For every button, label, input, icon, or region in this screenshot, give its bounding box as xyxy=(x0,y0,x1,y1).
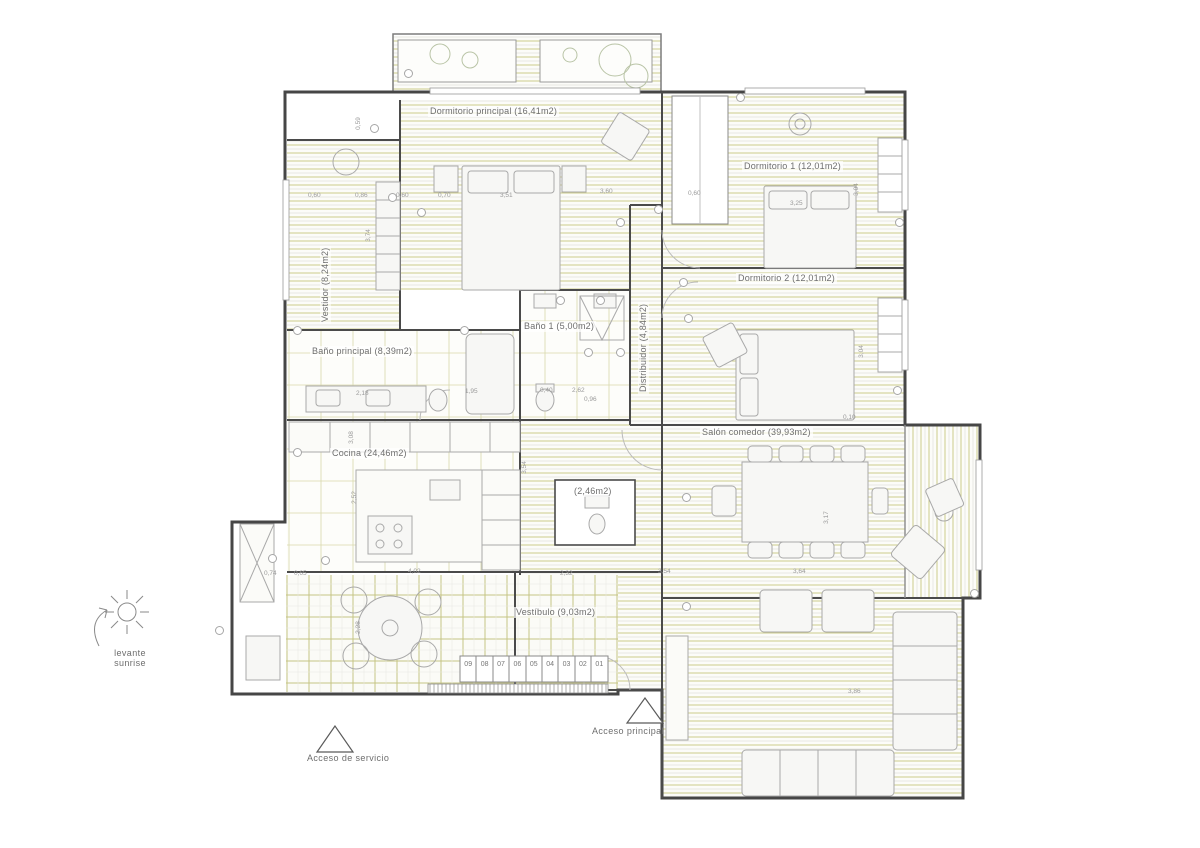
dimension-label: 4,02 xyxy=(408,568,421,575)
dimension-label: 2,18 xyxy=(356,390,369,397)
reference-marker xyxy=(417,208,426,217)
room-label-vestidor: Vestidor (8,24m2) xyxy=(320,246,331,324)
reference-marker xyxy=(388,193,397,202)
reference-marker xyxy=(654,205,663,214)
reference-marker xyxy=(895,218,904,227)
stair-tread-number: 01 xyxy=(591,661,607,669)
dimension-label: 2,52 xyxy=(351,491,358,504)
dimension-label: 3,54 xyxy=(521,461,528,474)
dimension-label: 3,08 xyxy=(348,431,355,444)
acceso-servicio-label: Acceso de servicio xyxy=(307,753,389,763)
dimension-label: 0,40 xyxy=(540,387,553,394)
floor-plan-page: Dormitorio principal (16,41m2) Dormitori… xyxy=(0,0,1200,848)
reference-marker xyxy=(584,348,593,357)
sunrise-caption-line1: levante xyxy=(95,648,165,658)
room-label-salon-comedor: Salón comedor (39,93m2) xyxy=(700,427,813,438)
acceso-principal-triangle xyxy=(627,698,663,723)
dimension-label: 0,74 xyxy=(264,570,277,577)
dimension-label: 2,28 xyxy=(355,621,362,634)
room-label-distribuidor: Distribuidor (4,84m2) xyxy=(638,302,649,394)
stair-tread-number: 02 xyxy=(575,661,591,669)
sunrise-caption: levante sunrise xyxy=(95,648,165,668)
dimension-label: 2,32 xyxy=(560,570,573,577)
dimension-label: 3,54 xyxy=(658,568,671,575)
dimension-label: 3,51 xyxy=(500,192,513,199)
dimension-label: 0,65 xyxy=(294,570,307,577)
acceso-servicio-triangle xyxy=(317,726,353,752)
reference-marker xyxy=(370,124,379,133)
dimension-label: 0,60 xyxy=(688,190,701,197)
dimension-label: 2,62 xyxy=(572,387,585,394)
dimension-label: 0,96 xyxy=(584,396,597,403)
dimension-label: 3,64 xyxy=(793,568,806,575)
reference-marker xyxy=(556,296,565,305)
reference-marker xyxy=(321,556,330,565)
reference-marker xyxy=(970,589,979,598)
dimension-label: 3,60 xyxy=(600,188,613,195)
dimension-label: 0,59 xyxy=(355,117,362,130)
reference-marker xyxy=(684,314,693,323)
reference-marker xyxy=(682,602,691,611)
stair-tread-number: 07 xyxy=(493,661,509,669)
dimension-label: 0,86 xyxy=(355,192,368,199)
stair-tread-number: 04 xyxy=(542,661,558,669)
reference-marker xyxy=(460,326,469,335)
stair-tread-number: 09 xyxy=(460,661,476,669)
reference-marker xyxy=(215,626,224,635)
dimension-label: 3,74 xyxy=(365,229,372,242)
stair-tread-number: 08 xyxy=(476,661,492,669)
dimension-label: 3,25 xyxy=(790,200,803,207)
reference-marker xyxy=(616,348,625,357)
reference-marker xyxy=(616,218,625,227)
reference-marker xyxy=(404,69,413,78)
dimension-label: 3,17 xyxy=(823,511,830,524)
reference-marker xyxy=(682,493,691,502)
room-label-vestibulo: Vestíbulo (9,03m2) xyxy=(514,607,597,618)
reference-marker xyxy=(293,326,302,335)
stair-tread-numbers: 090807060504030201 xyxy=(460,661,608,669)
reference-marker xyxy=(893,386,902,395)
sunrise-icon xyxy=(95,590,150,646)
dimension-label: 3,04 xyxy=(853,183,860,196)
reference-marker xyxy=(293,448,302,457)
room-label-cocina: Cocina (24,46m2) xyxy=(330,448,409,459)
reference-marker xyxy=(596,296,605,305)
access-arrows xyxy=(317,698,663,752)
dimension-label: 0,10 xyxy=(843,414,856,421)
stair-tread-number: 06 xyxy=(509,661,525,669)
dimension-label: 3,04 xyxy=(858,345,865,358)
acceso-principal-label: Acceso principal xyxy=(592,726,664,736)
stair-tread-number: 05 xyxy=(526,661,542,669)
dimension-label: 0,60 xyxy=(308,192,321,199)
dimension-label: 3,86 xyxy=(848,688,861,695)
reference-marker xyxy=(736,93,745,102)
room-label-dormitorio-1: Dormitorio 1 (12,01m2) xyxy=(742,161,843,172)
room-label-dormitorio-principal: Dormitorio principal (16,41m2) xyxy=(428,106,559,117)
dimension-label: 1,95 xyxy=(465,388,478,395)
sunrise-caption-line2: sunrise xyxy=(95,658,165,668)
dimension-label: 0,60 xyxy=(396,192,409,199)
room-label-dormitorio-2: Dormitorio 2 (12,01m2) xyxy=(736,273,837,284)
stair-tread-number: 03 xyxy=(558,661,574,669)
room-label-bano-principal: Baño principal (8,39m2) xyxy=(310,346,414,357)
reference-marker xyxy=(679,278,688,287)
room-label-aseo: (2,46m2) xyxy=(572,486,614,497)
room-label-bano-1: Baño 1 (5,00m2) xyxy=(522,321,596,332)
floor-plan-drawing xyxy=(0,0,1200,848)
reference-marker xyxy=(268,554,277,563)
dimension-label: 0,70 xyxy=(438,192,451,199)
